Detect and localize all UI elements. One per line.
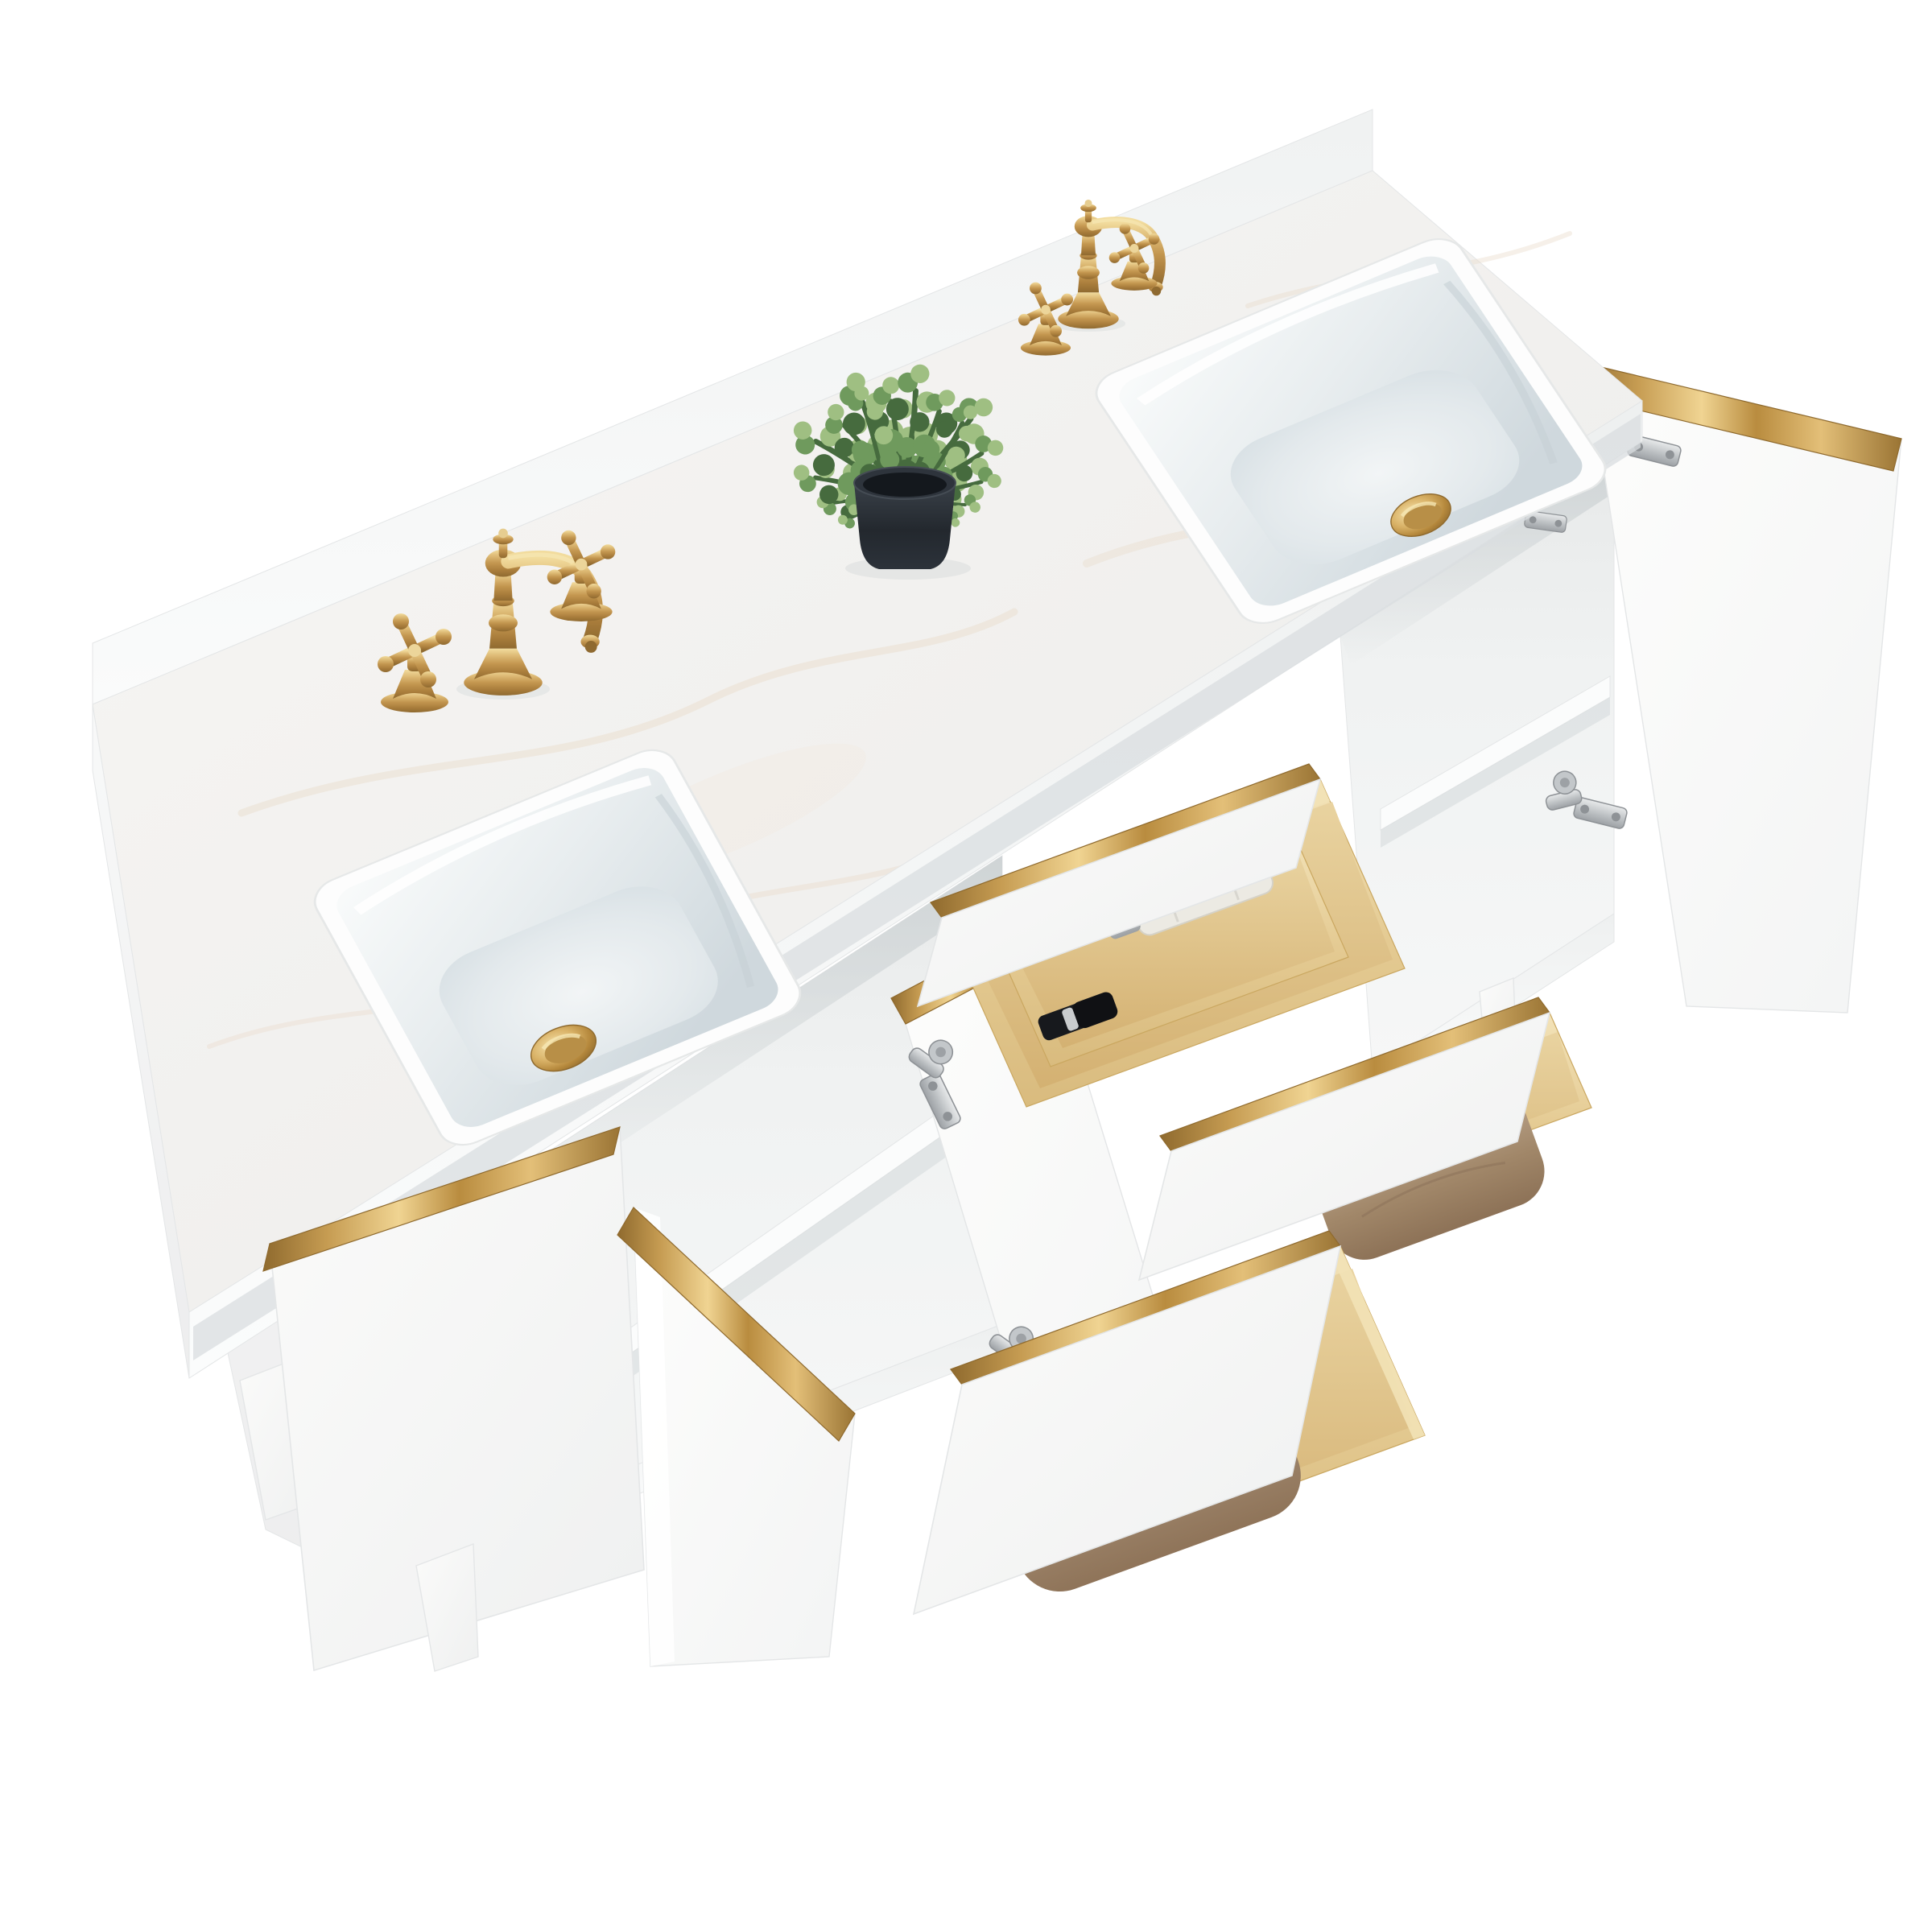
plant-pot <box>854 467 956 569</box>
cabinet-leg <box>416 1544 478 1671</box>
vanity-product-photo: White double-sink bathroom vanity, three… <box>0 0 1932 1932</box>
